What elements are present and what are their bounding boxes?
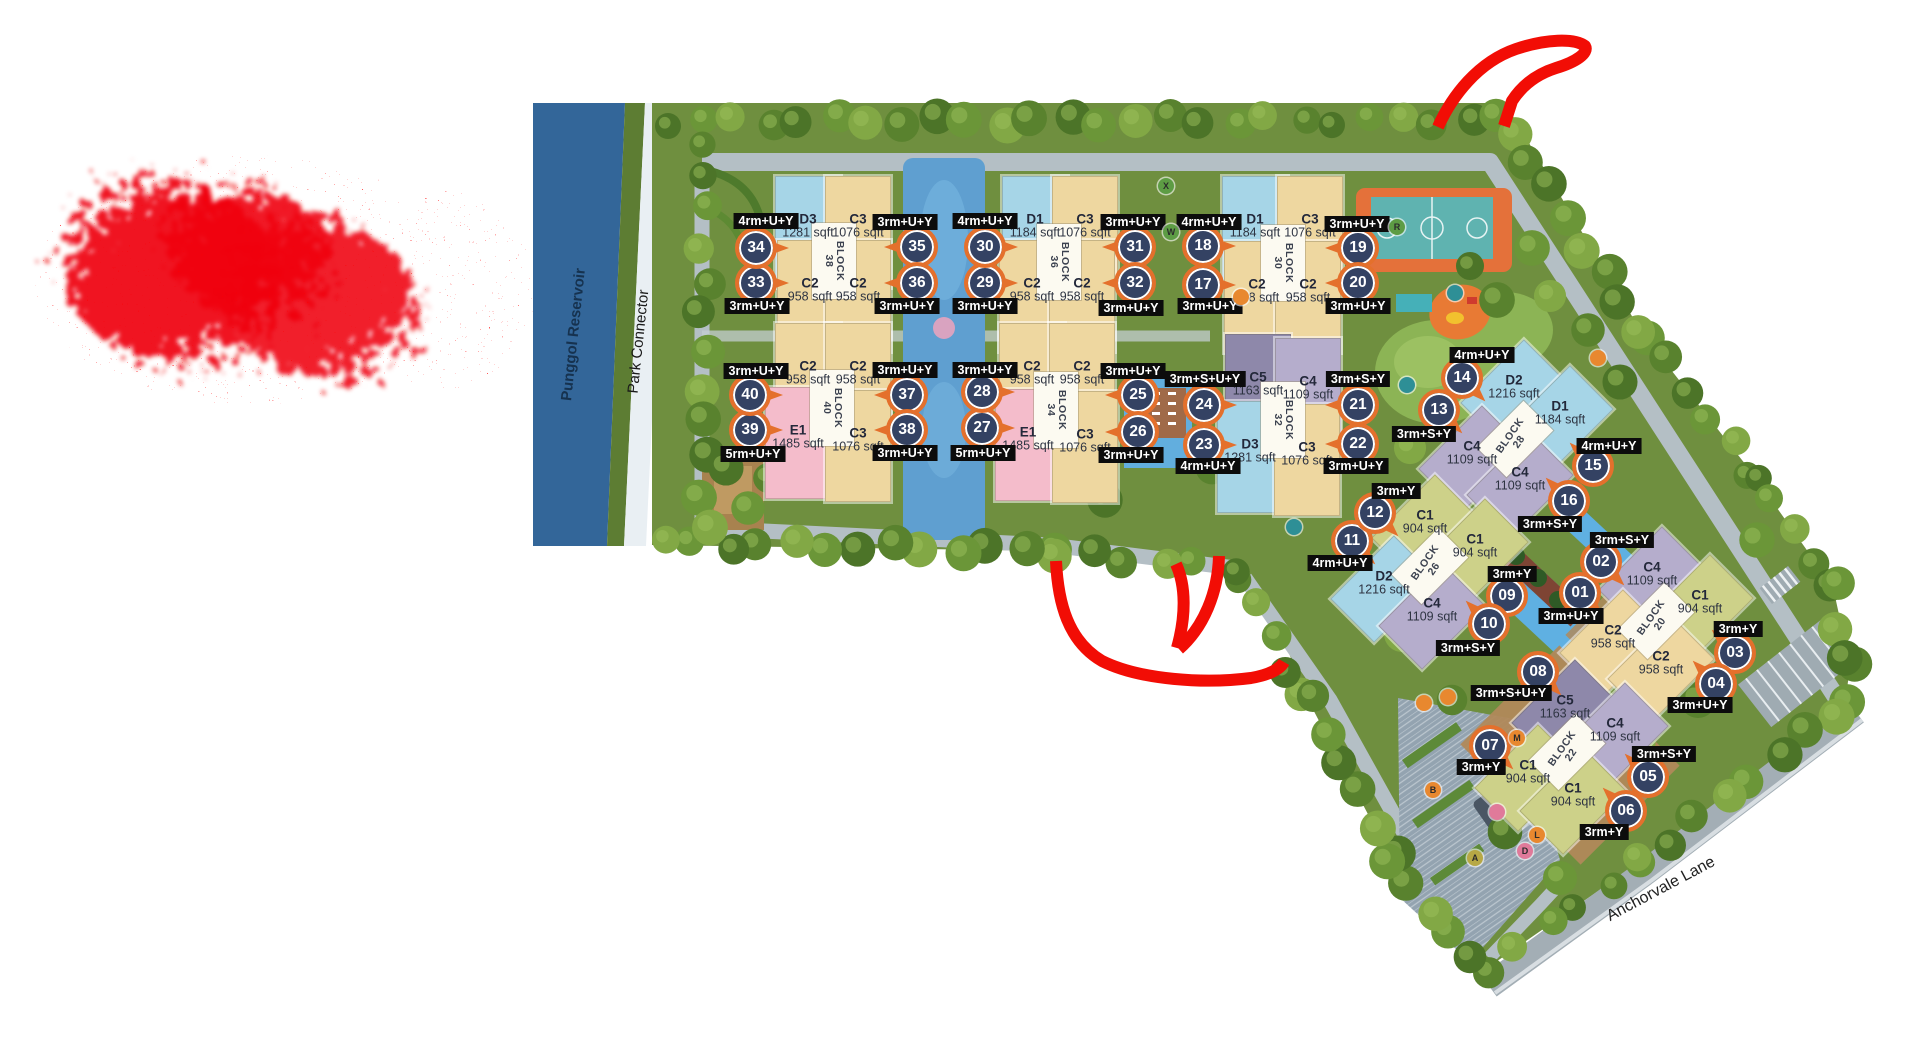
amenity-badge: X	[1158, 178, 1174, 194]
unit-mix-chip: 3rm+U+Y	[725, 298, 790, 314]
unit-type-label: D11184 sqft	[1535, 400, 1586, 427]
unit-size: 904 sqft	[1551, 796, 1595, 809]
unit-type-label: C41109 sqft	[1590, 717, 1641, 744]
unit-code: C3	[1059, 428, 1110, 442]
unit-code: C2	[1591, 624, 1635, 638]
buildings-overlay: BLOCK38D31281 sqftC31076 sqftC2958 sqftC…	[0, 0, 1932, 1044]
amenity-badge	[1447, 285, 1463, 301]
unit-code: C1	[1506, 759, 1550, 773]
amenity-badge: D	[1517, 843, 1533, 859]
unit-code: C2	[836, 277, 880, 291]
unit-mix-chip: 3rm+Y	[1580, 824, 1629, 840]
amenity-badge	[1489, 804, 1505, 820]
unit-code: C2	[786, 360, 830, 374]
stack-number: 32	[1114, 262, 1156, 304]
unit-type-label: C41109 sqft	[1447, 440, 1498, 467]
unit-mix-chip: 3rm+Y	[1488, 566, 1537, 582]
unit-size: 1109 sqft	[1283, 389, 1334, 402]
amenity-badge	[1440, 689, 1456, 705]
unit-mix-chip: 3rm+Y	[1457, 759, 1506, 775]
amenity-badge: L	[1529, 827, 1545, 843]
block-label-word: BLOCK	[832, 388, 843, 428]
unit-mix-chip: 3rm+S+Y	[1392, 426, 1456, 442]
stack-number: 14	[1441, 357, 1483, 399]
unit-size: 1109 sqft	[1495, 480, 1546, 493]
unit-mix-chip: 3rm+S+Y	[1518, 516, 1582, 532]
unit-code: C4	[1627, 561, 1678, 575]
stack-number: 40	[729, 374, 771, 416]
unit-mix-chip: 3rm+U+Y	[873, 362, 938, 378]
unit-type-label: C2958 sqft	[788, 277, 832, 304]
stack-number: 21	[1337, 384, 1379, 426]
unit-mix-chip: 3rm+U+Y	[953, 298, 1018, 314]
unit-size: 1216 sqft	[1488, 388, 1539, 401]
stack-number: 10	[1468, 603, 1510, 645]
amenity-badge: R	[1389, 219, 1405, 235]
unit-mix-chip: 4rm+U+Y	[1177, 214, 1242, 230]
amenity-badge	[1590, 350, 1606, 366]
unit-code: C4	[1590, 717, 1641, 731]
unit-mix-chip: 3rm+U+Y	[1099, 447, 1164, 463]
block-label: BLOCK34	[1045, 390, 1067, 430]
stack-number: 30	[964, 226, 1006, 268]
unit-mix-chip: 3rm+U+Y	[1326, 298, 1391, 314]
amenity-badge: B	[1425, 782, 1441, 798]
unit-size: 958 sqft	[1639, 664, 1683, 677]
block-label: BLOCK32	[1272, 400, 1294, 440]
unit-type-label: C2958 sqft	[786, 360, 830, 387]
block-label: BLOCK38	[823, 241, 845, 281]
unit-type-label: C2958 sqft	[1060, 360, 1104, 387]
unit-code: C1	[1551, 782, 1595, 796]
unit-type-label: C41109 sqft	[1627, 561, 1678, 588]
unit-code: D2	[1488, 374, 1539, 388]
amenity-badge: M	[1509, 730, 1525, 746]
unit-mix-chip: 3rm+S+Y	[1436, 640, 1500, 656]
unit-code: C1	[1403, 509, 1447, 523]
unit-code: C2	[1286, 278, 1330, 292]
unit-code: D1	[1535, 400, 1586, 414]
unit-type-label: C1904 sqft	[1453, 533, 1497, 560]
unit-mix-chip: 3rm+U+Y	[1101, 363, 1166, 379]
unit-size: 958 sqft	[1286, 292, 1330, 305]
unit-size: 958 sqft	[788, 291, 832, 304]
unit-size: 1109 sqft	[1447, 454, 1498, 467]
unit-mix-chip: 3rm+U+Y	[873, 445, 938, 461]
unit-code: C1	[1453, 533, 1497, 547]
unit-mix-chip: 3rm+Y	[1372, 483, 1421, 499]
unit-size: 1109 sqft	[1407, 611, 1458, 624]
block-number: 32	[1272, 414, 1283, 427]
unit-mix-chip: 3rm+U+Y	[1178, 298, 1243, 314]
unit-type-label: C1904 sqft	[1551, 782, 1595, 809]
unit-size: 958 sqft	[1060, 374, 1104, 387]
unit-code: C3	[832, 427, 883, 441]
block-label: BLOCK40	[821, 388, 843, 428]
unit-type-label: C1904 sqft	[1506, 759, 1550, 786]
unit-type-label: C1904 sqft	[1678, 589, 1722, 616]
unit-code: C2	[1060, 277, 1104, 291]
unit-mix-chip: 5rm+U+Y	[951, 445, 1016, 461]
unit-mix-chip: 3rm+U+Y	[1325, 216, 1390, 232]
amenity-badge	[1399, 377, 1415, 393]
stack-number: 24	[1183, 384, 1225, 426]
amenity-badge: W	[1163, 224, 1179, 240]
unit-type-label: C2958 sqft	[1286, 278, 1330, 305]
unit-mix-chip: 4rm+U+Y	[734, 213, 799, 229]
unit-size: 1184 sqft	[1535, 414, 1586, 427]
block-number: 34	[1045, 404, 1056, 417]
unit-type-label: C2958 sqft	[1639, 650, 1683, 677]
stack-number: 27	[961, 407, 1003, 449]
stack-number: 25	[1117, 374, 1159, 416]
unit-type-label: D21216 sqft	[1488, 374, 1539, 401]
unit-size: 1163 sqft	[1540, 708, 1591, 721]
unit-mix-chip: 4rm+U+Y	[1450, 347, 1515, 363]
unit-mix-chip: 3rm+U+Y	[1668, 697, 1733, 713]
unit-code: C2	[788, 277, 832, 291]
block-number: 30	[1272, 257, 1283, 270]
unit-code: C2	[1639, 650, 1683, 664]
unit-mix-chip: 3rm+U+Y	[953, 362, 1018, 378]
amenity-badge: A	[1467, 850, 1483, 866]
unit-mix-chip: 3rm+S+Y	[1632, 746, 1696, 762]
unit-mix-chip: 4rm+U+Y	[1577, 438, 1642, 454]
unit-mix-chip: 3rm+S+Y	[1326, 371, 1390, 387]
unit-type-label: C2958 sqft	[1591, 624, 1635, 651]
stack-number: 18	[1182, 225, 1224, 267]
unit-mix-chip: 3rm+S+U+Y	[1165, 371, 1246, 387]
block-label-word: BLOCK	[834, 241, 845, 281]
unit-size: 904 sqft	[1403, 523, 1447, 536]
unit-mix-chip: 3rm+U+Y	[724, 363, 789, 379]
unit-code: D2	[1358, 570, 1409, 584]
unit-mix-chip: 3rm+S+U+Y	[1471, 685, 1552, 701]
unit-mix-chip: 5rm+U+Y	[721, 446, 786, 462]
block-label-word: BLOCK	[1056, 390, 1067, 430]
unit-mix-chip: 4rm+U+Y	[1176, 458, 1241, 474]
amenity-badge	[1286, 519, 1302, 535]
unit-mix-chip: 3rm+Y	[1714, 621, 1763, 637]
site-plan-canvas: Punggol Reservoir Park Connector Anchorv…	[0, 0, 1932, 1044]
unit-mix-chip: 3rm+U+Y	[1099, 300, 1164, 316]
unit-code: C3	[1281, 441, 1332, 455]
stack-number: 34	[735, 227, 777, 269]
unit-mix-chip: 3rm+U+Y	[1324, 458, 1389, 474]
unit-size: 1109 sqft	[1627, 575, 1678, 588]
unit-type-label: C1904 sqft	[1403, 509, 1447, 536]
unit-size: 958 sqft	[786, 374, 830, 387]
unit-type-label: D21216 sqft	[1358, 570, 1409, 597]
unit-mix-chip: 3rm+U+Y	[875, 298, 940, 314]
unit-size: 1216 sqft	[1358, 584, 1409, 597]
unit-code: C1	[1678, 589, 1722, 603]
unit-mix-chip: 3rm+U+Y	[1101, 214, 1166, 230]
unit-code: C4	[1407, 597, 1458, 611]
unit-size: 904 sqft	[1678, 603, 1722, 616]
unit-type-label: C41109 sqft	[1495, 466, 1546, 493]
unit-mix-chip: 4rm+U+Y	[1308, 555, 1373, 571]
block-number: 38	[823, 255, 834, 268]
block-label-word: BLOCK	[1283, 400, 1294, 440]
unit-mix-chip: 3rm+U+Y	[1539, 608, 1604, 624]
unit-mix-chip: 4rm+U+Y	[953, 213, 1018, 229]
unit-code: C2	[1060, 360, 1104, 374]
amenity-badge	[1416, 695, 1432, 711]
unit-mix-chip: 3rm+S+Y	[1590, 532, 1654, 548]
amenity-badge	[1233, 289, 1249, 305]
unit-code: C4	[1495, 466, 1546, 480]
block-number: 36	[1048, 256, 1059, 269]
unit-size: 904 sqft	[1506, 773, 1550, 786]
unit-size: 1109 sqft	[1590, 731, 1641, 744]
unit-type-label: C41109 sqft	[1407, 597, 1458, 624]
unit-size: 904 sqft	[1453, 547, 1497, 560]
block-number: 40	[821, 402, 832, 415]
unit-size: 958 sqft	[1591, 638, 1635, 651]
unit-mix-chip: 3rm+U+Y	[873, 214, 938, 230]
